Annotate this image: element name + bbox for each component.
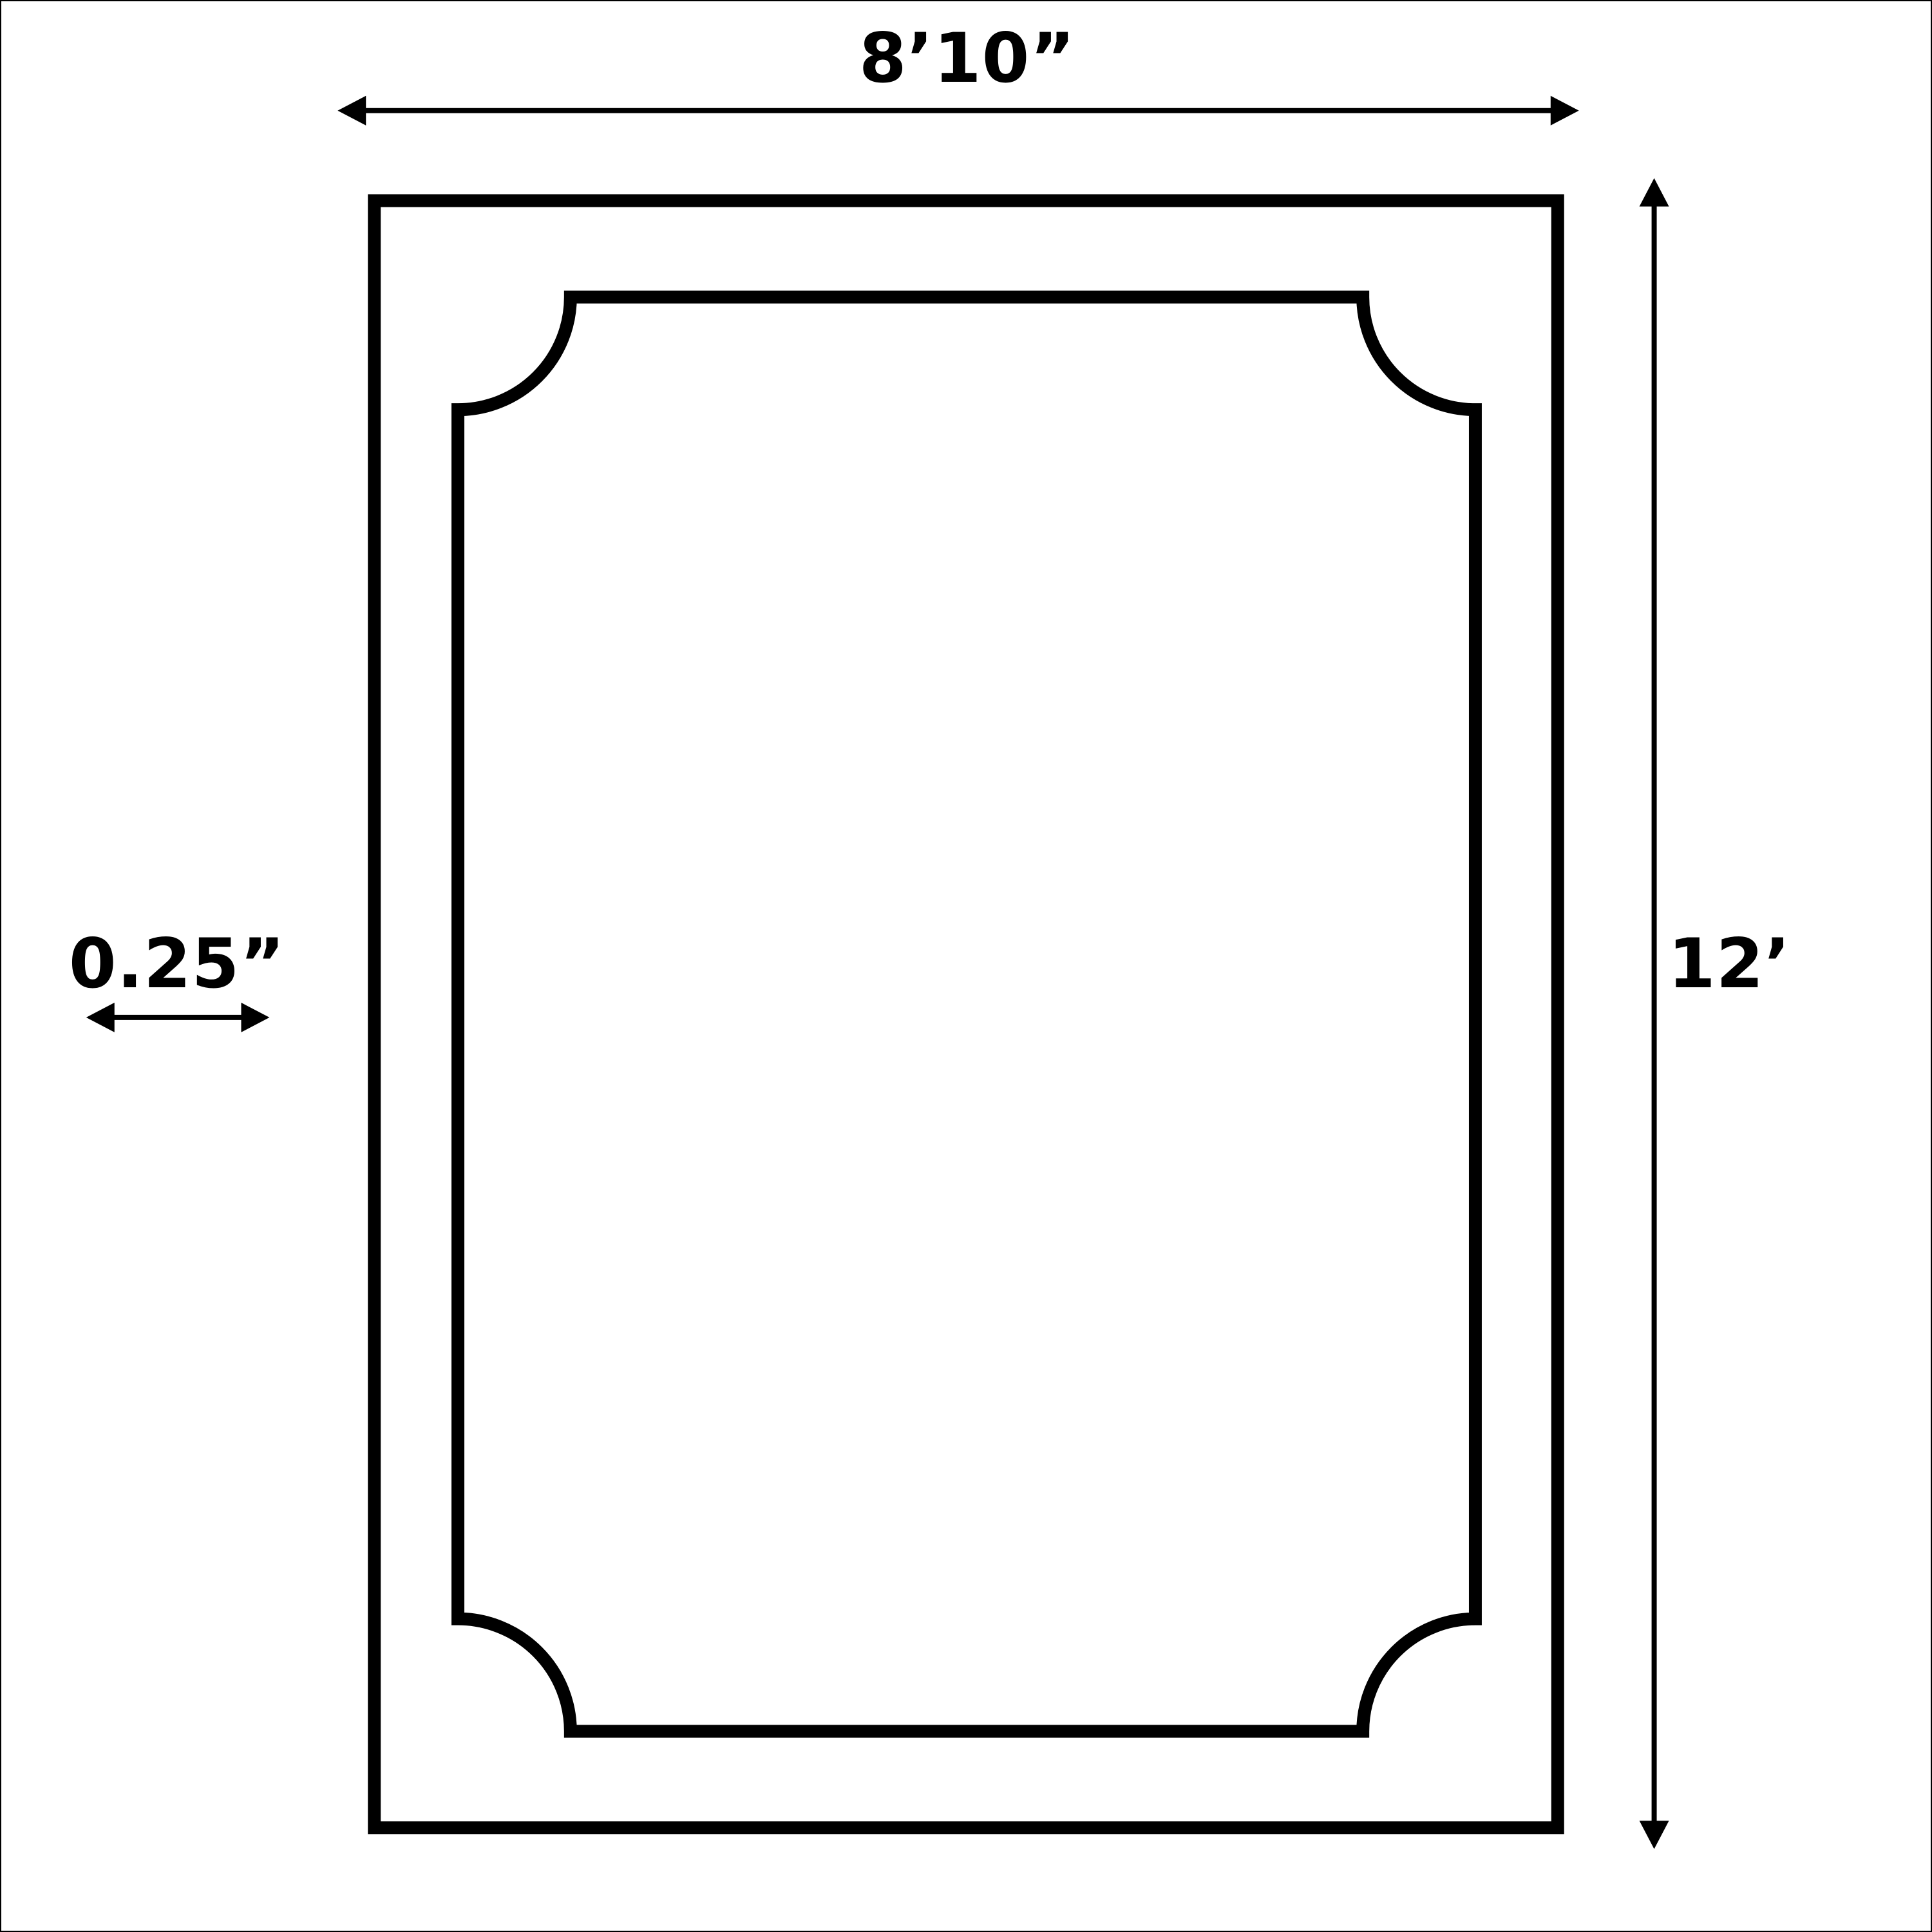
width-arrow-right-head-icon [1551, 96, 1579, 126]
height-dimension-arrow [1640, 178, 1669, 1850]
height-arrow-bottom-head-icon [1640, 1821, 1669, 1849]
width-dimension-label: 8’10” [1, 24, 1932, 93]
thickness-arrow-right-head-icon [241, 1003, 270, 1032]
width-arrow-left-head-icon [337, 96, 366, 126]
height-arrow-top-head-icon [1640, 178, 1669, 207]
width-dimension-arrow [337, 96, 1578, 126]
height-dimension-label: 12’ [1668, 930, 1791, 998]
dimension-diagram: 8’10” 12’ 0.25” [0, 0, 1932, 1932]
thickness-dimension-label: 0.25” [48, 930, 306, 998]
outer-rectangle [374, 201, 1558, 1828]
thickness-dimension-arrow [86, 1003, 270, 1032]
thickness-arrow-left-head-icon [86, 1003, 115, 1032]
